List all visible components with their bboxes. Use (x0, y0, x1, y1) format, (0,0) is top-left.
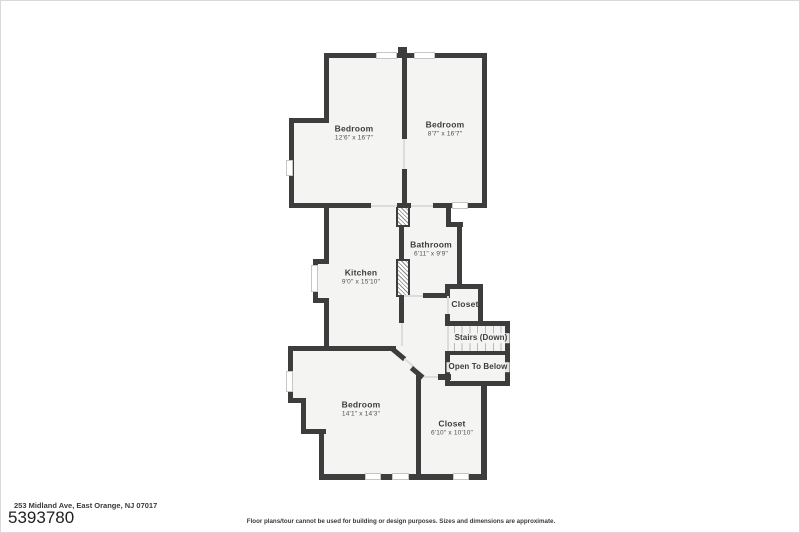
wall-segment (482, 53, 487, 208)
room-name: Closet (451, 299, 478, 309)
door-opening (447, 326, 449, 351)
door-opening (371, 205, 397, 207)
room-name: Bedroom (335, 124, 374, 134)
wall-segment (324, 203, 329, 261)
room-label-kitchen: Kitchen 9'0" x 15'10" (342, 268, 380, 287)
room-label-stairs: Stairs (Down) (453, 333, 510, 343)
wall-segment (399, 296, 404, 323)
window-symbol (414, 52, 435, 59)
room-name: Bedroom (342, 400, 381, 410)
floor-plan-page: Bedroom 12'6" x 16'7" Bedroom 8'7" x 16'… (0, 0, 800, 533)
room-name: Open To Below (447, 362, 510, 372)
room-name: Bedroom (426, 120, 465, 130)
wall-segment (478, 284, 483, 326)
room-dimensions: 6'11" x 9'9" (410, 251, 452, 259)
window-symbol (365, 473, 381, 480)
room-label-closet-lower: Closet 6'10" x 10'10" (431, 419, 473, 438)
hatched-wall (396, 259, 410, 297)
room-label-bedroom-3: Bedroom 14'1" x 14'3" (342, 400, 381, 419)
wall-segment (457, 222, 462, 286)
door-opening (447, 296, 449, 314)
wall-segment (324, 53, 329, 123)
room-name: Closet (431, 419, 473, 429)
window-symbol (392, 473, 409, 480)
wall-segment (445, 381, 510, 386)
room-label-bathroom: Bathroom 6'11" x 9'9" (410, 240, 452, 259)
window-symbol (452, 202, 468, 209)
room-label-open-to-below: Open To Below (447, 362, 510, 372)
wall-segment (290, 346, 396, 351)
window-symbol (376, 52, 397, 59)
door-opening (411, 205, 433, 207)
door-opening (401, 323, 403, 346)
room-name: Stairs (Down) (453, 333, 510, 343)
room-label-bedroom-2: Bedroom 8'7" x 16'7" (426, 120, 465, 139)
door-opening (403, 139, 405, 169)
wall-segment (438, 374, 451, 380)
room-dimensions: 12'6" x 16'7" (335, 135, 374, 143)
room-name: Bathroom (410, 240, 452, 250)
door-opening (424, 376, 438, 378)
wall-segment (289, 118, 329, 123)
room-dimensions: 8'7" x 16'7" (426, 131, 465, 139)
window-symbol (311, 265, 318, 292)
window-symbol (286, 371, 293, 392)
room-fill (291, 120, 328, 207)
wall-segment (416, 373, 421, 478)
wall-segment (481, 386, 487, 480)
hatched-wall (396, 206, 410, 227)
wall-segment (399, 224, 404, 261)
disclaimer-text: Floor plans/tour cannot be used for buil… (247, 518, 555, 525)
window-symbol (453, 473, 469, 480)
room-dimensions: 6'10" x 10'10" (431, 430, 473, 438)
room-name: Kitchen (342, 268, 380, 278)
door-opening (404, 295, 423, 297)
wall-segment (319, 429, 324, 479)
wall-segment (445, 351, 510, 355)
wall-segment (445, 321, 510, 326)
window-symbol (286, 160, 293, 176)
wall-segment (402, 53, 407, 139)
room-label-bedroom-1: Bedroom 12'6" x 16'7" (335, 124, 374, 143)
listing-number: 5393780 (8, 508, 74, 528)
room-dimensions: 9'0" x 15'10" (342, 279, 380, 287)
room-dimensions: 14'1" x 14'3" (342, 411, 381, 419)
wall-segment (289, 203, 371, 208)
wall-segment (324, 298, 329, 348)
wall-segment (402, 169, 407, 208)
room-fill (321, 432, 421, 477)
room-label-closet-upper: Closet (451, 299, 478, 309)
wall-segment (445, 284, 450, 296)
floor-plan: Bedroom 12'6" x 16'7" Bedroom 8'7" x 16'… (1, 1, 800, 533)
